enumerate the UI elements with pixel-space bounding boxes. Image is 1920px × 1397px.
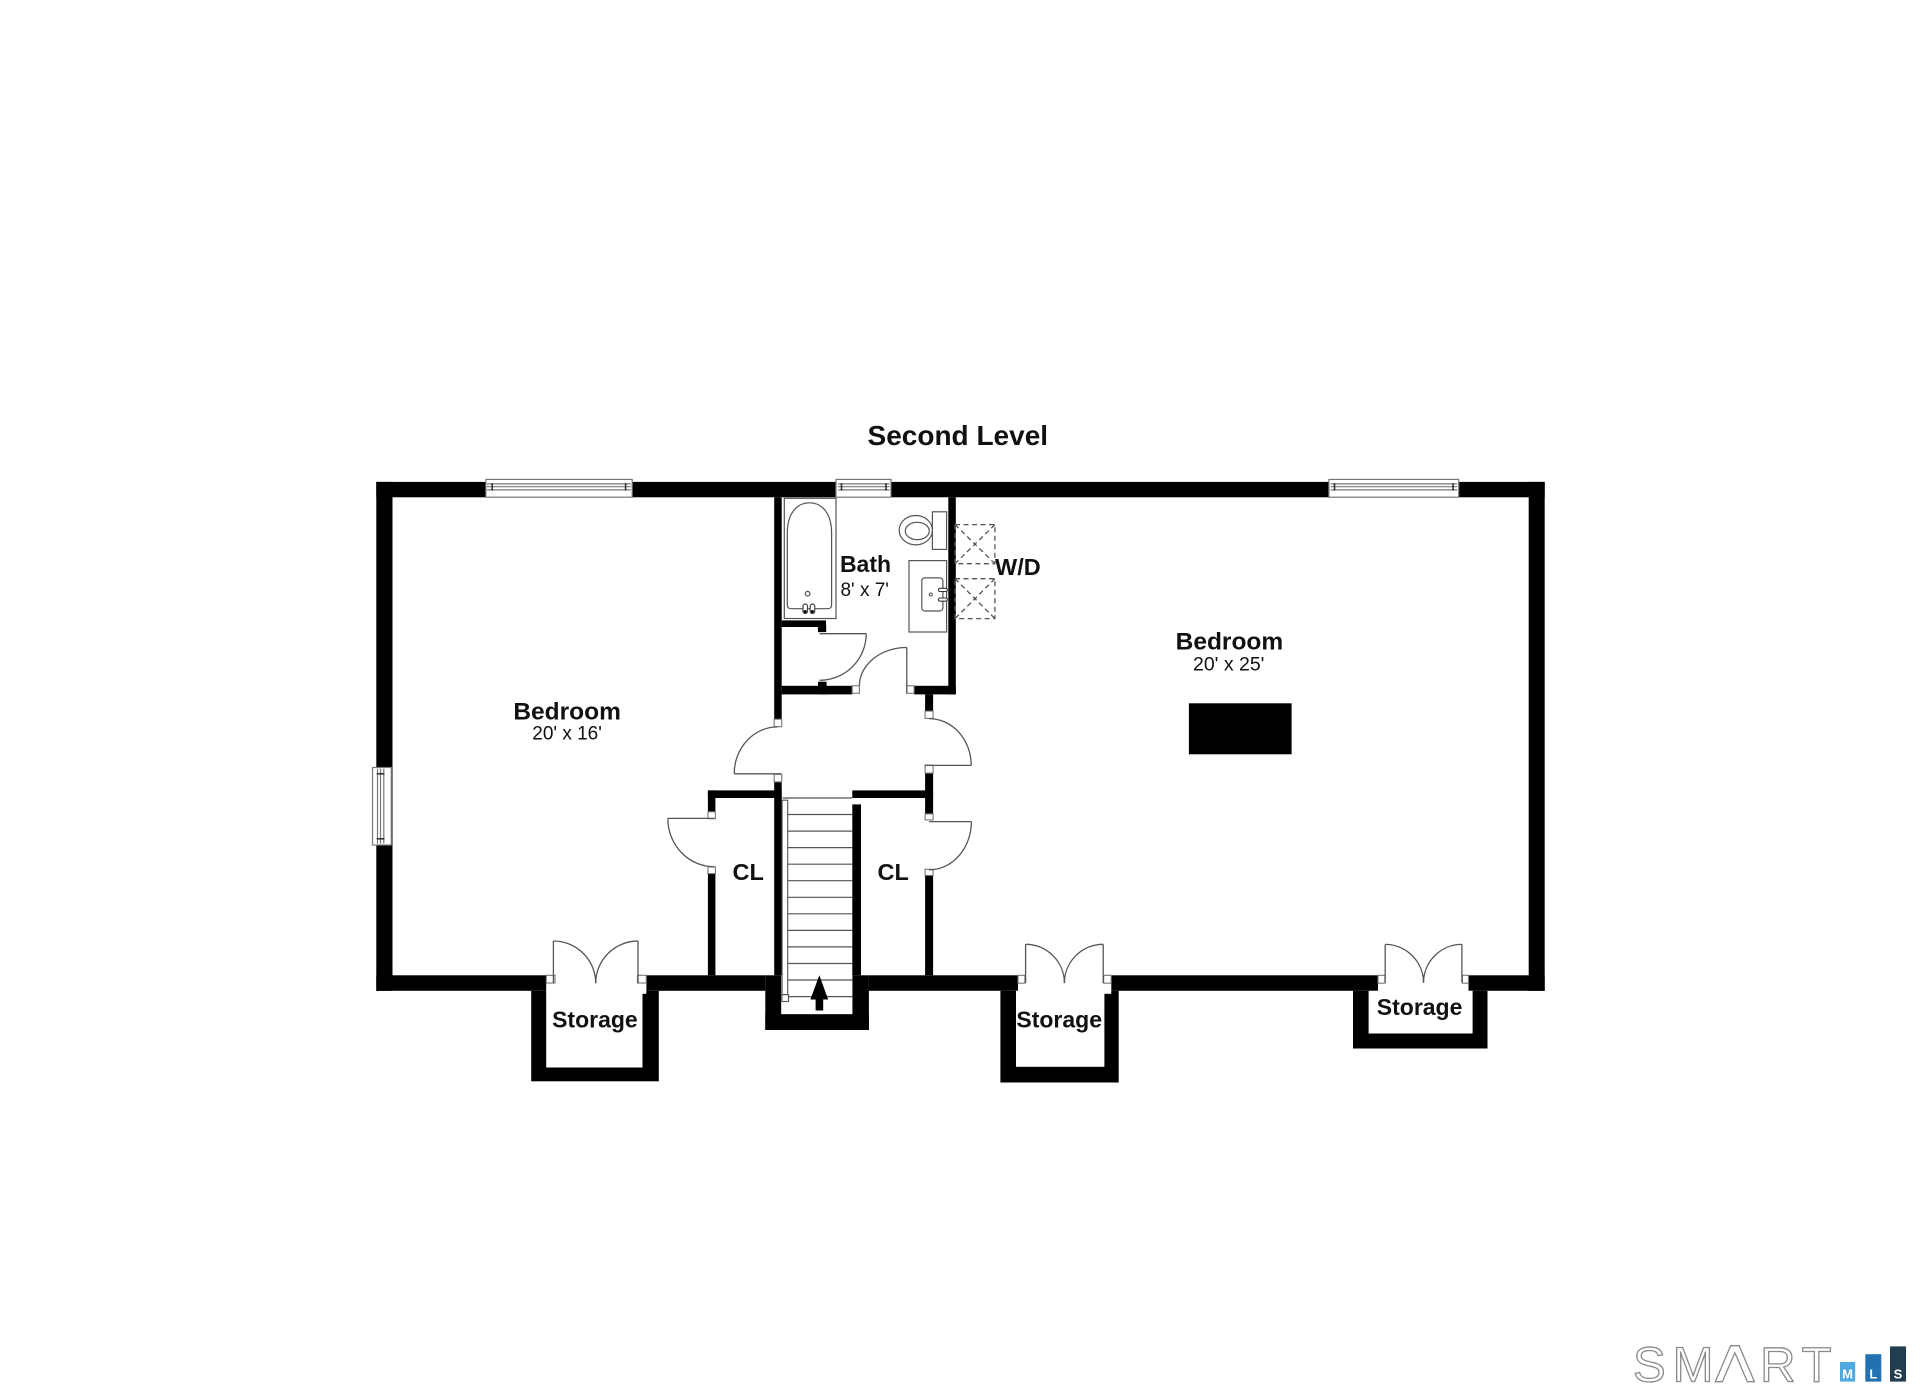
svg-text:L: L [1869,1367,1877,1382]
svg-text:Storage: Storage [1377,994,1463,1020]
svg-text:S: S [1894,1367,1903,1382]
svg-text:8' x 7': 8' x 7' [840,580,888,601]
svg-text:Bath: Bath [840,551,891,577]
svg-text:Storage: Storage [552,1007,638,1033]
svg-text:Storage: Storage [1016,1006,1102,1032]
svg-text:Bedroom: Bedroom [1176,629,1284,656]
svg-text:Second Level: Second Level [868,420,1049,451]
svg-text:CL: CL [878,859,909,885]
svg-text:Bedroom: Bedroom [513,699,621,726]
svg-text:20' x 25': 20' x 25' [1193,654,1264,676]
svg-text:M: M [1842,1367,1853,1382]
svg-text:CL: CL [733,859,764,885]
svg-text:20' x 16': 20' x 16' [532,724,602,745]
svg-text:W/D: W/D [995,554,1041,580]
